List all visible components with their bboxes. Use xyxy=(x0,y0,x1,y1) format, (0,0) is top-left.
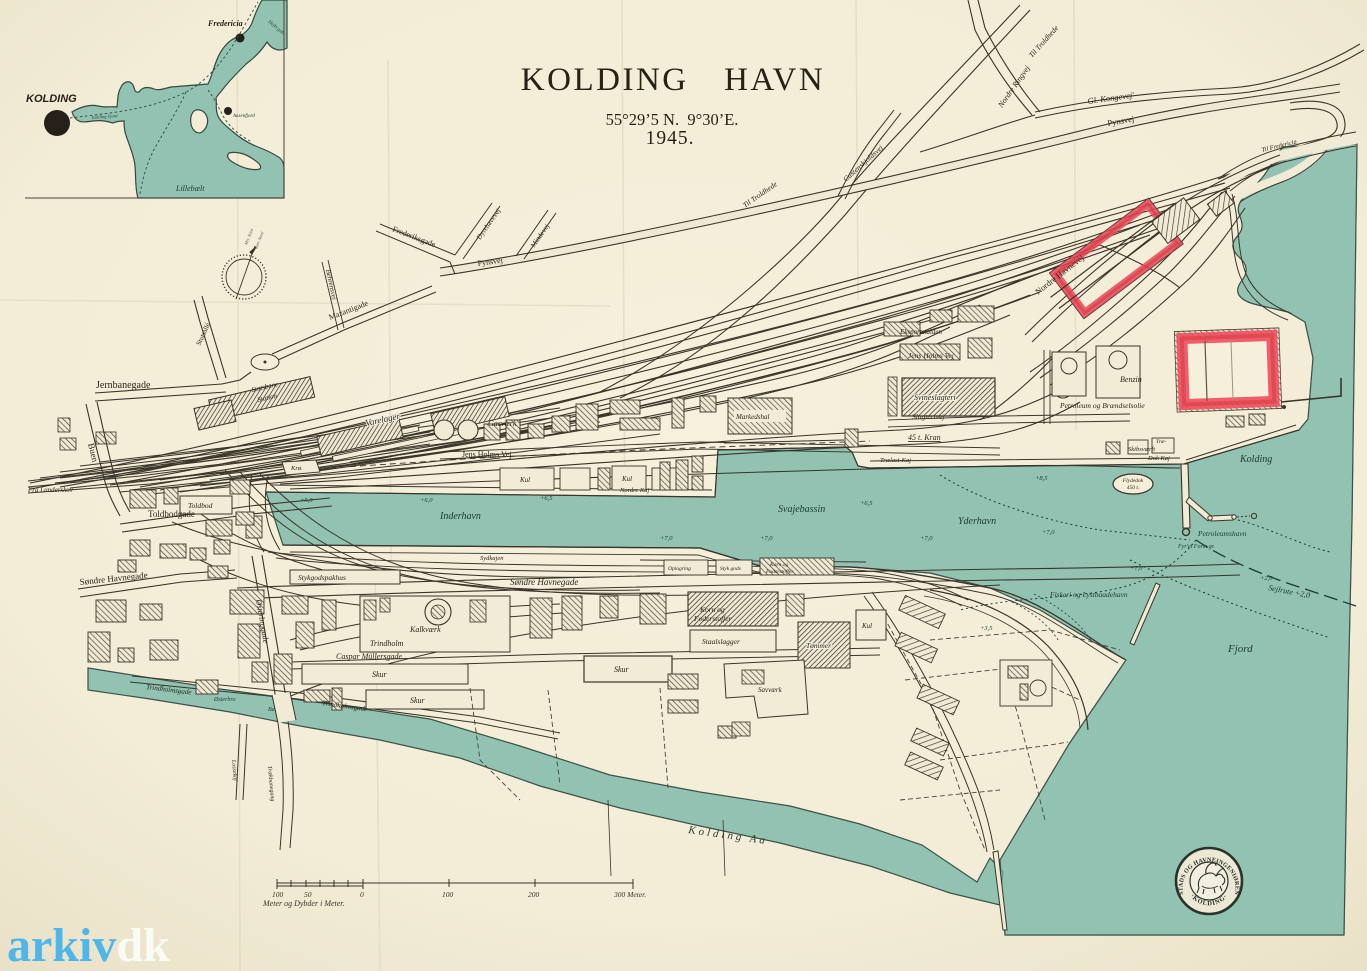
svg-text:50: 50 xyxy=(304,890,312,899)
svg-text:Trindholm: Trindholm xyxy=(370,639,404,648)
svg-text:Caspar Müllersgade: Caspar Müllersgade xyxy=(336,652,402,661)
svg-text:Svineslagteri: Svineslagteri xyxy=(914,393,956,402)
svg-text:Petroleumshavn: Petroleumshavn xyxy=(1197,529,1247,538)
svg-text:Jens Holms Vej: Jens Holms Vej xyxy=(908,351,954,360)
svg-text:Tømmer: Tømmer xyxy=(806,641,831,650)
svg-text:Korn og: Korn og xyxy=(699,605,725,614)
svg-text:Træ-: Træ- xyxy=(1156,439,1167,445)
svg-text:Jernbanegade: Jernbanegade xyxy=(96,380,151,391)
svg-text:KOLDING: KOLDING xyxy=(26,93,77,105)
svg-text:+6,5: +6,5 xyxy=(540,495,553,502)
svg-text:Aasenfjord: Aasenfjord xyxy=(232,114,255,119)
svg-text:Skur: Skur xyxy=(614,665,630,674)
svg-text:Fyr'et Form gr.: Fyr'et Form gr. xyxy=(1177,544,1215,550)
svg-text:Meter og Dybder i Meter.: Meter og Dybder i Meter. xyxy=(262,899,345,908)
svg-text:Kalkværk: Kalkværk xyxy=(409,625,441,634)
svg-text:+7,0: +7,0 xyxy=(1130,565,1143,572)
svg-text:Markedshal: Markedshal xyxy=(735,413,769,421)
svg-text:1945.: 1945. xyxy=(646,128,695,149)
svg-text:300 Meter.: 300 Meter. xyxy=(613,890,646,899)
svg-text:Korn og: Korn og xyxy=(769,562,788,568)
svg-text:Lillebælt: Lillebælt xyxy=(175,184,205,193)
svg-text:Yderhavn: Yderhavn xyxy=(958,516,996,527)
svg-text:Fjord: Fjord xyxy=(1227,643,1253,655)
svg-text:Styk gods: Styk gods xyxy=(720,566,741,572)
svg-text:Nordre Kaj: Nordre Kaj xyxy=(619,487,650,494)
svg-text:Fiskeri og Lystbaadehavn: Fiskeri og Lystbaadehavn xyxy=(1049,590,1128,599)
svg-text:Staalslagger: Staalslagger xyxy=(702,637,740,646)
svg-text:Inderhavn: Inderhavn xyxy=(439,511,481,522)
svg-text:100: 100 xyxy=(272,890,284,899)
svg-text:+8,5: +8,5 xyxy=(1035,475,1048,482)
svg-text:Kolding: Kolding xyxy=(1239,454,1272,465)
svg-text:Oplagring: Oplagring xyxy=(668,566,691,572)
svg-text:0: 0 xyxy=(360,890,364,899)
svg-text:Eksportstalden: Eksportstalden xyxy=(899,328,942,336)
svg-text:Svajebassin: Svajebassin xyxy=(778,504,825,515)
svg-text:Skur: Skur xyxy=(410,696,426,705)
svg-text:Østerbro: Østerbro xyxy=(213,697,235,703)
svg-text:Skibsværft: Skibsværft xyxy=(1128,446,1155,453)
svg-text:Søndre Havnegade: Søndre Havnegade xyxy=(510,577,578,587)
svg-text:Kul: Kul xyxy=(519,476,530,484)
svg-text:Fra Lunderskov: Fra Lunderskov xyxy=(27,486,74,494)
svg-text:Savværk: Savværk xyxy=(758,686,783,694)
svg-text:Petroleum og Brændselsolie: Petroleum og Brændselsolie xyxy=(1059,401,1145,410)
svg-text:+5,0: +5,0 xyxy=(300,497,313,504)
svg-text:Slagterivej: Slagterivej xyxy=(912,412,945,421)
svg-text:Jens Holms Vej: Jens Holms Vej xyxy=(462,450,512,459)
svg-text:Gasværk: Gasværk xyxy=(488,419,517,428)
svg-text:Dok Kaj: Dok Kaj xyxy=(1147,455,1170,462)
svg-text:100: 100 xyxy=(442,890,454,899)
svg-text:+7,0: +7,0 xyxy=(660,535,673,542)
svg-text:+2,0: +2,0 xyxy=(1260,575,1273,582)
svg-text:+6,5: +6,5 xyxy=(860,500,873,507)
svg-text:450 t.: 450 t. xyxy=(1127,484,1140,491)
svg-text:Fredericia: Fredericia xyxy=(207,19,243,28)
svg-text:+3,5: +3,5 xyxy=(980,625,993,632)
svg-text:Foderstoffer: Foderstoffer xyxy=(693,614,732,623)
svg-text:Krø.: Krø. xyxy=(290,465,303,472)
svg-text:45 t. Kran: 45 t. Kran xyxy=(908,433,941,442)
svg-text:arkivdk: arkivdk xyxy=(7,919,170,971)
svg-text:Flydedok: Flydedok xyxy=(1122,478,1144,484)
svg-text:Kul: Kul xyxy=(621,475,632,483)
svg-text:Skur: Skur xyxy=(372,670,388,679)
svg-text:KOLDING HAVN: KOLDING HAVN xyxy=(521,62,825,98)
svg-text:Stykgodspakhus: Stykgodspakhus xyxy=(298,573,346,582)
svg-text:+6,0: +6,0 xyxy=(420,497,433,504)
svg-text:200: 200 xyxy=(528,890,540,899)
svg-text:+7,0: +7,0 xyxy=(1042,529,1055,536)
svg-text:Foderstoffer: Foderstoffer xyxy=(765,568,794,575)
svg-text:Kul: Kul xyxy=(861,622,872,630)
svg-text:Trælast-Kaj: Trælast-Kaj xyxy=(880,457,911,464)
svg-text:+7,0: +7,0 xyxy=(920,535,933,542)
svg-text:Sydkajen: Sydkajen xyxy=(480,555,503,562)
svg-text:Benzin: Benzin xyxy=(1120,375,1142,384)
svg-text:55°29’5 N. 9°30’E.: 55°29’5 N. 9°30’E. xyxy=(606,110,739,129)
svg-text:+7,0: +7,0 xyxy=(760,535,773,542)
svg-text:Toldbodgade: Toldbodgade xyxy=(148,509,195,519)
